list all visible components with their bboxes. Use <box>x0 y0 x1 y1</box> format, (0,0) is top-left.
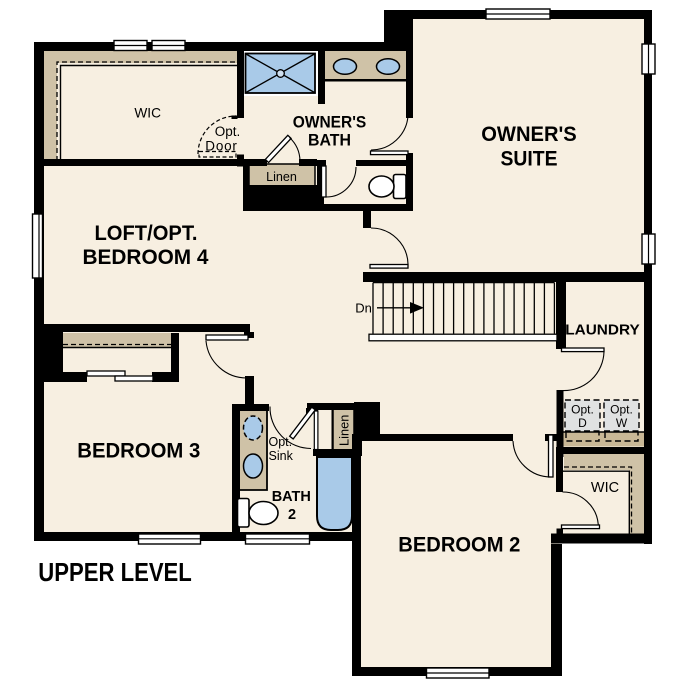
svg-text:Opt.: Opt. <box>269 435 293 449</box>
svg-text:OWNER'S: OWNER'S <box>481 123 577 146</box>
svg-text:Door: Door <box>205 139 237 154</box>
svg-text:D: D <box>578 416 587 430</box>
svg-text:WIC: WIC <box>134 105 161 120</box>
svg-text:Opt.: Opt. <box>215 124 241 139</box>
svg-text:BATH: BATH <box>308 132 351 150</box>
svg-text:Linen: Linen <box>266 170 297 184</box>
svg-text:BATH: BATH <box>272 489 311 505</box>
svg-text:Dn: Dn <box>355 301 372 316</box>
svg-text:OWNER'S: OWNER'S <box>293 114 367 132</box>
svg-text:LOFT/OPT.: LOFT/OPT. <box>95 222 198 245</box>
svg-text:Sink: Sink <box>269 449 294 463</box>
svg-text:BEDROOM 3: BEDROOM 3 <box>77 440 200 463</box>
svg-text:UPPER LEVEL: UPPER LEVEL <box>38 557 192 587</box>
svg-text:Opt.: Opt. <box>610 403 633 417</box>
svg-text:W: W <box>616 416 628 430</box>
svg-text:WIC: WIC <box>591 480 619 496</box>
svg-text:Opt.: Opt. <box>571 403 594 417</box>
svg-text:BEDROOM 4: BEDROOM 4 <box>83 246 209 269</box>
svg-text:BEDROOM 2: BEDROOM 2 <box>398 534 520 557</box>
svg-text:Linen: Linen <box>337 415 352 446</box>
svg-text:LAUNDRY: LAUNDRY <box>565 322 640 339</box>
svg-text:2: 2 <box>288 507 296 523</box>
svg-text:SUITE: SUITE <box>501 148 558 171</box>
